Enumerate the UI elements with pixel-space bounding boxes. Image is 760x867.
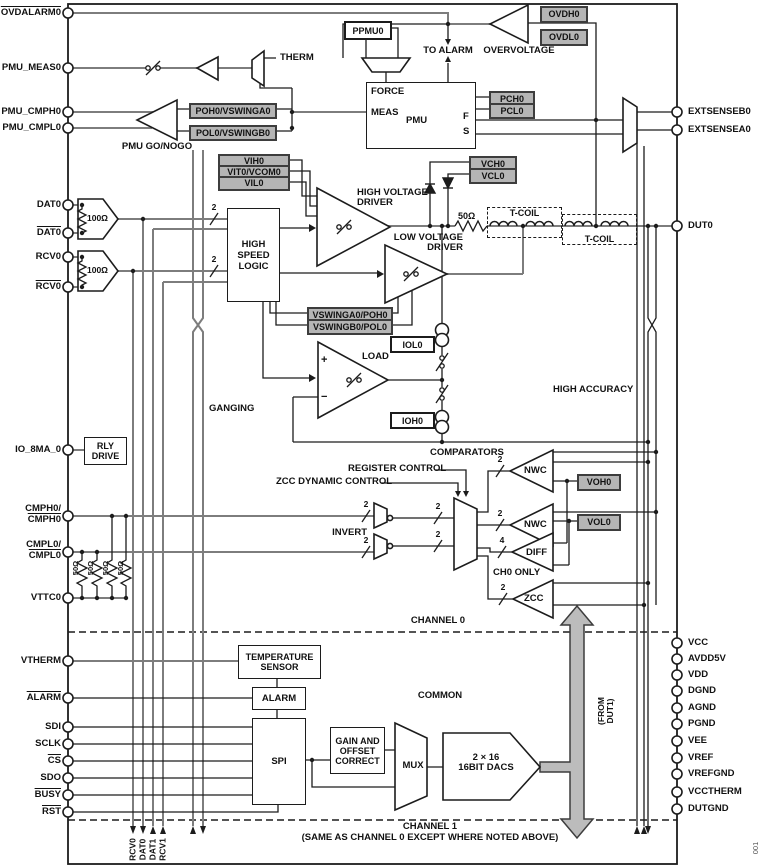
pin-vcc: VCC xyxy=(688,637,760,648)
pmu-meas-buffer-triangle xyxy=(197,57,218,80)
bus-width-rcv: 2 xyxy=(206,254,222,264)
therm-label: THERM xyxy=(280,53,314,63)
register-control-label: REGISTER CONTROL xyxy=(348,464,433,474)
nwc1-label: NWC xyxy=(524,466,547,476)
r50-term4-label: 50Ω xyxy=(117,557,125,579)
zcc-dynamic-control-label: ZCC DYNAMIC CONTROL xyxy=(276,477,379,487)
pmu-name-label: PMU xyxy=(406,116,427,126)
pin-io-8ma-0: IO_8MA_0 xyxy=(0,444,61,455)
pin-extsenseb0: EXTSENSEB0 xyxy=(688,106,760,117)
pin-alarm-bar: ALARM xyxy=(0,692,61,703)
pin-pmu-cmph0: PMU_CMPH0 xyxy=(0,106,61,117)
pmu-s-label: S xyxy=(463,127,469,137)
bus-width-mux-lower: 2 xyxy=(430,529,446,539)
clamp-diodes xyxy=(425,178,453,193)
r100-rcv-label: 100Ω xyxy=(87,265,108,275)
figure-number: 001 xyxy=(752,834,760,862)
r50-label: 50Ω xyxy=(458,211,475,221)
voh0-box: VOH0 xyxy=(577,474,621,491)
pol0-vswingb0-box: POL0/VSWINGB0 xyxy=(189,125,277,141)
pin-cmph0: CMPH0/CMPH0 xyxy=(0,503,61,525)
pin-vrefgnd: VREFGND xyxy=(688,768,760,779)
pin-vdd: VDD xyxy=(688,669,760,680)
r50-term3-label: 50Ω xyxy=(102,557,110,579)
bus-width-cmph: 2 xyxy=(358,499,374,509)
from-dut1-label: (FROM DUT1) xyxy=(597,689,617,733)
p in-vref: VREF xyxy=(688,752,760,763)
pin-vtherm: VTHERM xyxy=(0,655,61,666)
functional-block-diagram: OVDALARM0 PMU_MEAS0 PMU_CMPH0 PMU_CMPL0 … xyxy=(0,0,760,867)
pin-pgnd: PGND xyxy=(688,718,760,729)
overvoltage-comparator-triangle xyxy=(490,5,528,43)
vol0-box: VOL0 xyxy=(577,514,621,531)
high-accuracy-label: HIGH ACCURACY xyxy=(553,385,633,395)
r50-term1-label: 50Ω xyxy=(72,557,80,579)
t-coil-box-2: T-COIL xyxy=(562,214,637,245)
pmu-meas-label: MEAS xyxy=(371,108,398,118)
pin-agnd: AGND xyxy=(688,702,760,713)
inverter-bubble-lower xyxy=(387,543,392,548)
vcl0-box: VCL0 xyxy=(469,168,517,184)
channel1-label: CHANNEL 1 xyxy=(330,822,530,832)
pin-vee: VEE xyxy=(688,735,760,746)
bus-width-dat: 2 xyxy=(206,202,222,212)
pmu-gonogo-label: PMU GO/NOGO xyxy=(107,142,207,152)
r50-term2-label: 50Ω xyxy=(87,557,95,579)
bus-width-nwc2: 2 xyxy=(492,508,508,518)
bus-width-cmpl: 2 xyxy=(358,535,374,545)
load-label: LOAD xyxy=(362,352,389,362)
pin-rcv0: RCV0 xyxy=(0,251,61,262)
pin-dgnd: DGND xyxy=(688,685,760,696)
ganging-label: GANGING xyxy=(209,404,254,414)
load-plus: + xyxy=(321,355,327,365)
bottom-signal-rcv0: RCV0 xyxy=(129,835,138,865)
pin-cs-bar: CS xyxy=(0,755,61,766)
pin-sclk: SCLK xyxy=(0,738,61,749)
alarm-block: ALARM xyxy=(252,687,306,710)
pin-avdd5v: AVDD5V xyxy=(688,653,760,664)
channel1-note: (SAME AS CHANNEL 0 EXCEPT WHERE NOTED AB… xyxy=(180,833,680,843)
ppmu0-box: PPMU0 xyxy=(344,21,392,40)
r100-dat-label: 100Ω xyxy=(87,213,108,223)
to-alarm-label: TO ALARM xyxy=(408,46,488,56)
poh0-vswinga0-box: POH0/VSWINGA0 xyxy=(189,103,277,119)
rly-drive-block: RLY DRIVE xyxy=(84,437,127,465)
spi-block: SPI xyxy=(252,718,306,805)
overvoltage-label: OVERVOLTAGE xyxy=(479,46,559,56)
therm-mux xyxy=(252,51,264,86)
pin-vcctherm: VCCTHERM xyxy=(688,786,760,797)
load-minus: − xyxy=(321,392,327,402)
pmu-gonogo-comparator-triangle xyxy=(137,100,177,140)
pin-dut0: DUT0 xyxy=(688,220,760,231)
hv-driver-label: HIGH VOLTAGE DRIVER xyxy=(357,188,428,208)
iol0-box: IOL0 xyxy=(390,336,435,353)
pin-pmu-meas0: PMU_MEAS0 xyxy=(0,62,61,73)
invert-mux-lower xyxy=(374,534,387,559)
pmu-f-label: F xyxy=(463,112,469,122)
pin-dat0-bar: DAT0 xyxy=(0,227,61,238)
pin-rst-bar: RST xyxy=(0,806,61,817)
bus-width-nwc1: 2 xyxy=(492,454,508,464)
temperature-sensor-block: TEMPERATURE SENSOR xyxy=(238,645,321,679)
from-dut1-arrow xyxy=(540,606,593,838)
ovdl0-box: OVDL0 xyxy=(540,29,588,46)
bus-width-mux-upper: 2 xyxy=(430,501,446,511)
pin-ovdalarm0: OVDALARM0 xyxy=(0,7,61,18)
pcl0-box: PCL0 xyxy=(489,103,535,119)
nwc2-label: NWC xyxy=(524,520,547,530)
ch0-only-label: CH0 ONLY xyxy=(493,568,540,578)
bus-width-diff: 4 xyxy=(494,535,510,545)
bus-width-zcc: 2 xyxy=(495,582,511,592)
pin-extsensea0: EXTSENSEA0 xyxy=(688,124,760,135)
gain-offset-correct-block: GAIN AND OFFSET CORRECT xyxy=(330,727,385,774)
pin-dutgnd: DUTGND xyxy=(688,803,760,814)
pin-rcv0-bar: RCV0 xyxy=(0,281,61,292)
bottom-signal-dat0: DAT0 xyxy=(139,835,148,865)
invert-mux-upper xyxy=(374,503,387,528)
pin-vttc0: VTTC0 xyxy=(0,592,61,603)
pin-cmpl0: CMPL0/CMPL0 xyxy=(0,539,61,561)
lv-driver-label: LOW VOLTAGE DRIVER xyxy=(383,233,463,253)
pin-sdi: SDI xyxy=(0,721,61,732)
resistor-50ohm-series xyxy=(455,221,487,231)
pin-sdo: SDO xyxy=(0,772,61,783)
t-coil-box-1: T-COIL xyxy=(487,207,562,238)
high-speed-logic-block: HIGH SPEED LOGIC xyxy=(227,208,280,302)
zcc-label: ZCC xyxy=(524,594,544,604)
diff-label: DIFF xyxy=(526,548,547,558)
channel0-label: CHANNEL 0 xyxy=(398,616,478,626)
pmu-force-mux xyxy=(362,58,410,72)
bottom-signal-rcv1: RCV1 xyxy=(159,835,168,865)
vswingb0-pol0-box: VSWINGB0/POL0 xyxy=(307,319,393,335)
mux-label: MUX xyxy=(399,761,427,771)
inverter-bubble-upper xyxy=(387,515,392,520)
common-label: COMMON xyxy=(408,691,472,701)
pin-pmu-cmpl0: PMU_CMPL0 xyxy=(0,122,61,133)
extsense-mux xyxy=(623,98,637,152)
comparator-output-mux xyxy=(454,498,477,570)
dacs-label: 2 × 16 16BIT DACS xyxy=(445,753,527,773)
ioh0-box: IOH0 xyxy=(390,412,435,429)
pin-busy-bar: BUSY xyxy=(0,789,61,800)
bottom-signal-dat1: DAT1 xyxy=(149,835,158,865)
vil0-box: VIL0 xyxy=(218,176,290,191)
pmu-force-label: FORCE xyxy=(371,87,404,97)
pin-dat0: DAT0 xyxy=(0,199,61,210)
symbol-shapes xyxy=(78,5,637,810)
ovdh0-box: OVDH0 xyxy=(540,6,588,23)
